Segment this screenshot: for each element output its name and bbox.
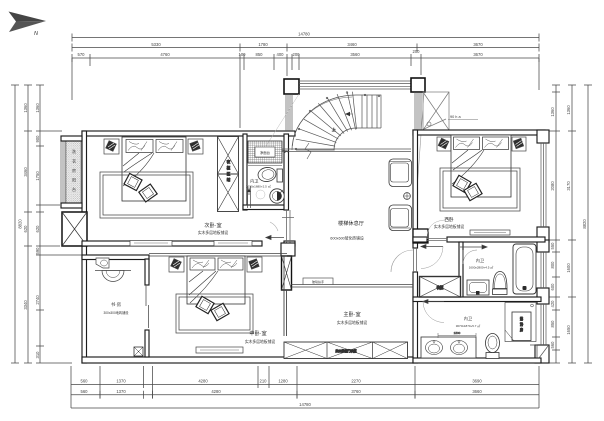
svg-text:1780: 1780 <box>258 42 268 47</box>
svg-text:1370: 1370 <box>116 389 126 394</box>
svg-text:1360: 1360 <box>550 107 555 117</box>
svg-text:5330: 5330 <box>151 42 161 47</box>
svg-text:600x600玻化砖铺设: 600x600玻化砖铺设 <box>330 236 364 241</box>
svg-text:400: 400 <box>277 52 285 57</box>
svg-text:书·房: 书·房 <box>111 301 122 308</box>
svg-text:1360: 1360 <box>35 103 40 113</box>
svg-text:4760: 4760 <box>160 52 170 57</box>
svg-text:1370: 1370 <box>116 379 126 384</box>
svg-text:1750: 1750 <box>35 171 40 181</box>
svg-text:100: 100 <box>239 52 247 57</box>
svg-text:2270: 2270 <box>351 379 361 384</box>
svg-text:600: 600 <box>550 283 555 291</box>
svg-text:3170: 3170 <box>566 181 571 191</box>
svg-text:1500: 1500 <box>454 331 461 335</box>
svg-text:内卫: 内卫 <box>464 315 472 322</box>
svg-text:1280: 1280 <box>278 379 288 384</box>
svg-text:620: 620 <box>35 225 40 233</box>
svg-text:300x300地砖铺设: 300x300地砖铺设 <box>104 310 130 315</box>
svg-text:200: 200 <box>413 49 421 54</box>
svg-text:14780: 14780 <box>299 402 311 407</box>
svg-text:次卧·室: 次卧·室 <box>204 221 221 229</box>
svg-text:4280: 4280 <box>211 389 221 394</box>
svg-text:1360: 1360 <box>23 103 28 113</box>
svg-text:3340: 3340 <box>23 300 28 310</box>
svg-text:8820: 8820 <box>18 219 23 229</box>
svg-text:850: 850 <box>550 320 555 328</box>
svg-text:620: 620 <box>23 225 28 233</box>
svg-text:衣柜: 衣柜 <box>437 285 443 290</box>
svg-text:4280: 4280 <box>198 379 208 384</box>
svg-text:3690: 3690 <box>472 379 482 384</box>
svg-text:210: 210 <box>260 379 268 384</box>
svg-text:3460: 3460 <box>23 167 28 177</box>
svg-text:3670: 3670 <box>473 42 483 47</box>
svg-text:560: 560 <box>550 341 555 349</box>
svg-text:内卫: 内卫 <box>250 178 258 185</box>
svg-text:玻璃扶手: 玻璃扶手 <box>312 279 324 284</box>
svg-text:2150x1680+2.5 ㎡: 2150x1680+2.5 ㎡ <box>246 184 271 189</box>
svg-text:实木多层地板铺设: 实木多层地板铺设 <box>198 230 229 235</box>
svg-text:800: 800 <box>550 261 555 269</box>
svg-text:实木多层地板铺设: 实木多层地板铺设 <box>245 339 276 344</box>
svg-text:420: 420 <box>550 300 555 308</box>
svg-text:3070x1870+5.7 ㎡: 3070x1870+5.7 ㎡ <box>456 323 481 328</box>
svg-text:570: 570 <box>78 52 86 57</box>
svg-text:实木多层地板铺设: 实木多层地板铺设 <box>434 224 465 229</box>
svg-text:实木多层地板铺设: 实木多层地板铺设 <box>337 320 368 325</box>
svg-text:1650: 1650 <box>566 325 571 335</box>
svg-text:3460: 3460 <box>347 42 357 47</box>
svg-text:2740: 2740 <box>35 295 40 305</box>
svg-text:西卧: 西卧 <box>444 216 454 223</box>
svg-text:1600: 1600 <box>566 263 571 273</box>
svg-text:上: 上 <box>332 127 336 132</box>
svg-text:90 h a: 90 h a <box>450 115 461 119</box>
svg-text:3560: 3560 <box>350 52 360 57</box>
svg-text:净面台: 净面台 <box>260 150 271 155</box>
svg-text:590: 590 <box>35 247 40 255</box>
svg-text:2080: 2080 <box>550 181 555 191</box>
svg-text:560: 560 <box>81 389 89 394</box>
svg-text:主卧·室: 主卧·室 <box>343 310 360 318</box>
svg-text:550: 550 <box>550 242 555 250</box>
svg-text:楼梯休息厅: 楼梯休息厅 <box>338 219 364 227</box>
svg-text:3660: 3660 <box>472 389 482 394</box>
svg-text:560: 560 <box>81 379 89 384</box>
svg-text:内卫: 内卫 <box>476 257 484 264</box>
svg-text:N: N <box>34 31 38 37</box>
svg-text:900: 900 <box>35 135 40 143</box>
svg-text:310: 310 <box>35 351 40 359</box>
svg-text:8820: 8820 <box>582 219 587 229</box>
svg-text:1600x2800+4.5 ㎡: 1600x2800+4.5 ㎡ <box>469 265 494 270</box>
svg-text:3670: 3670 <box>473 52 483 57</box>
svg-text:850: 850 <box>256 52 264 57</box>
svg-text:3760: 3760 <box>351 389 361 394</box>
svg-text:14780: 14780 <box>298 32 310 37</box>
svg-text:1360: 1360 <box>566 105 571 115</box>
svg-text:200: 200 <box>293 52 301 57</box>
svg-text:实木推拉门衣柜: 实木推拉门衣柜 <box>335 348 356 353</box>
